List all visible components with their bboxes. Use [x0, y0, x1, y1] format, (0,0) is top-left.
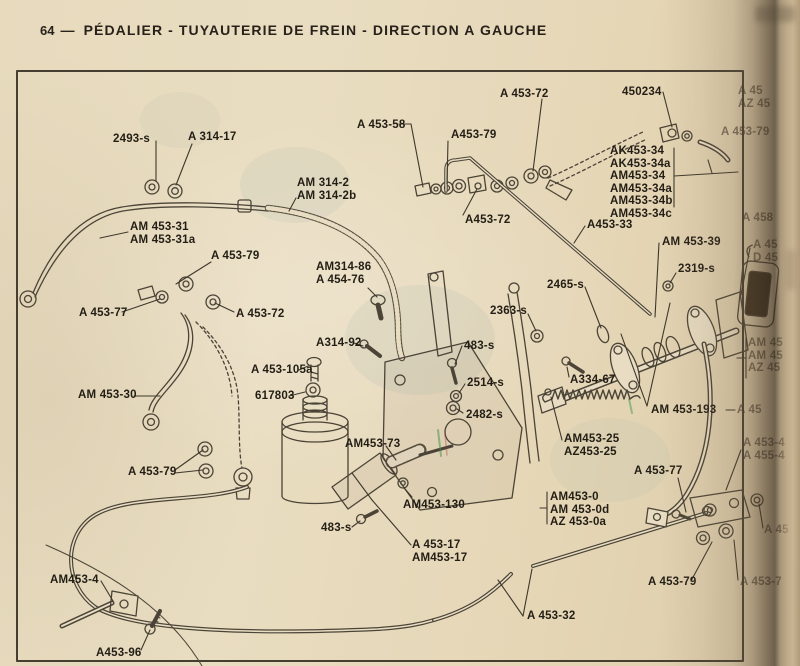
catalog-page: 64—PÉDALIER - TUYAUTERIE DE FREIN - DIRE… — [0, 0, 800, 666]
pedal-cross-shaft — [538, 281, 748, 413]
left-fittings — [138, 180, 220, 309]
brake-pipe-am453-30 — [143, 313, 193, 430]
banjo-fitting — [198, 442, 252, 499]
handbrake-cable — [20, 200, 402, 358]
long-brake-pipe — [71, 487, 716, 631]
upper-flexible-hose — [548, 124, 728, 186]
brake-rod-a453-33 — [446, 158, 650, 314]
top-fittings-row — [415, 166, 572, 200]
exploded-diagram — [0, 0, 800, 666]
